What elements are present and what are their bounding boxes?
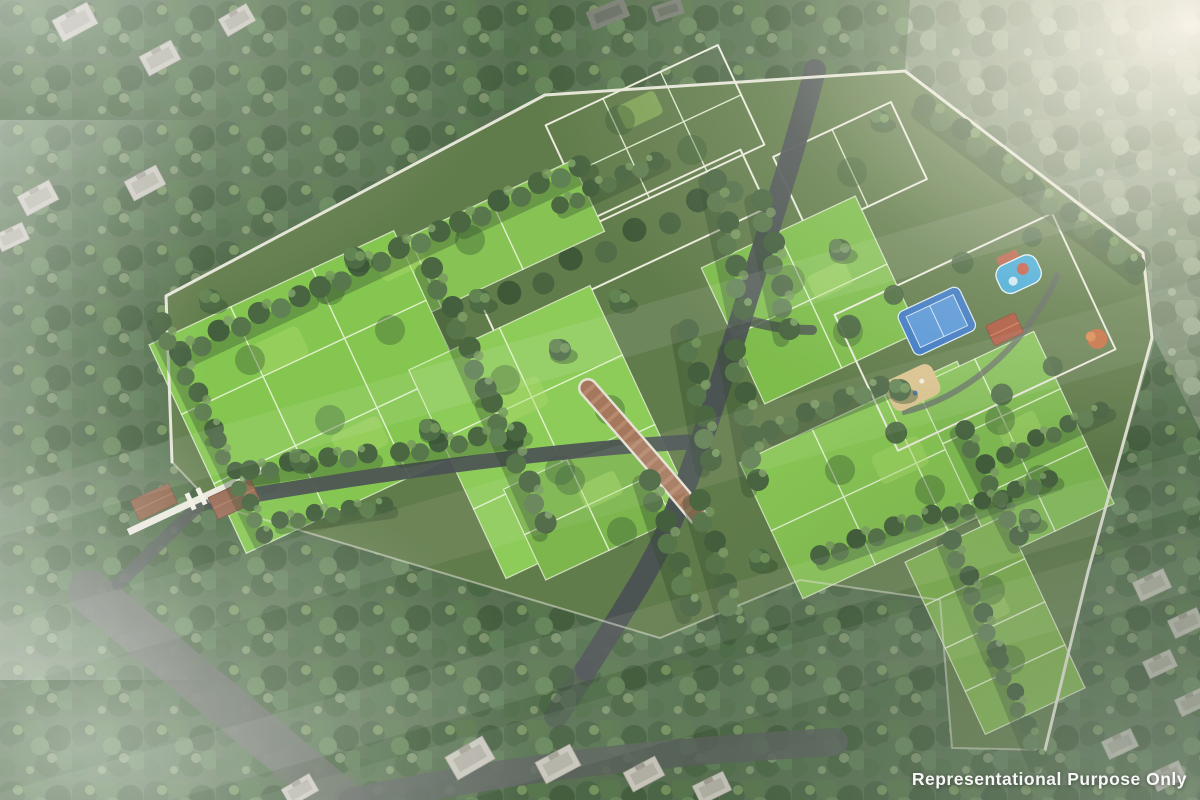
watermark: Representational Purpose Only <box>912 769 1187 790</box>
masterplan-scene <box>0 0 1200 800</box>
haze-overlay <box>0 0 1200 800</box>
aerial-render: Representational Purpose Only <box>0 0 1200 800</box>
